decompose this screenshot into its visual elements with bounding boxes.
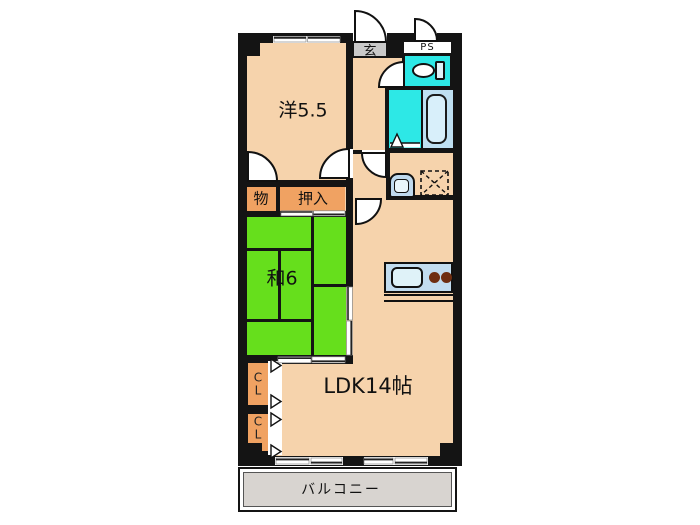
ps-door-swing bbox=[415, 19, 437, 41]
entrance-door-swing bbox=[355, 11, 386, 42]
folding-door-arrow bbox=[271, 395, 281, 408]
folding-door-arrow bbox=[271, 413, 281, 426]
floorplan-canvas: PS 玄 bbox=[0, 0, 700, 525]
closet-letter: L bbox=[254, 384, 262, 397]
oshiire-label: 押入 bbox=[298, 188, 328, 209]
closet-letter: C bbox=[254, 415, 262, 428]
ldk-door-swing bbox=[356, 199, 381, 224]
ldk-label: LDK14帖 bbox=[323, 370, 412, 400]
western-room-door-swing bbox=[320, 149, 349, 178]
storage-label: 物 bbox=[253, 188, 268, 209]
folding-door-arrow bbox=[271, 445, 281, 458]
closet-lower-label: C L bbox=[254, 415, 262, 440]
closet-upper-label: C L bbox=[254, 371, 262, 396]
toilet-door-swing bbox=[379, 62, 404, 87]
bath-door-arrow bbox=[391, 134, 403, 147]
closet-letter: C bbox=[254, 371, 262, 384]
washroom-door-swing bbox=[362, 153, 386, 177]
western-room-label: 洋5.5 bbox=[278, 96, 327, 123]
storage-door-swing bbox=[248, 152, 277, 181]
closet-letter: L bbox=[254, 428, 262, 441]
symbol-overlay bbox=[0, 0, 700, 525]
japanese-room-label: 和6 bbox=[266, 264, 297, 291]
balcony-label: バルコニー bbox=[301, 479, 381, 499]
